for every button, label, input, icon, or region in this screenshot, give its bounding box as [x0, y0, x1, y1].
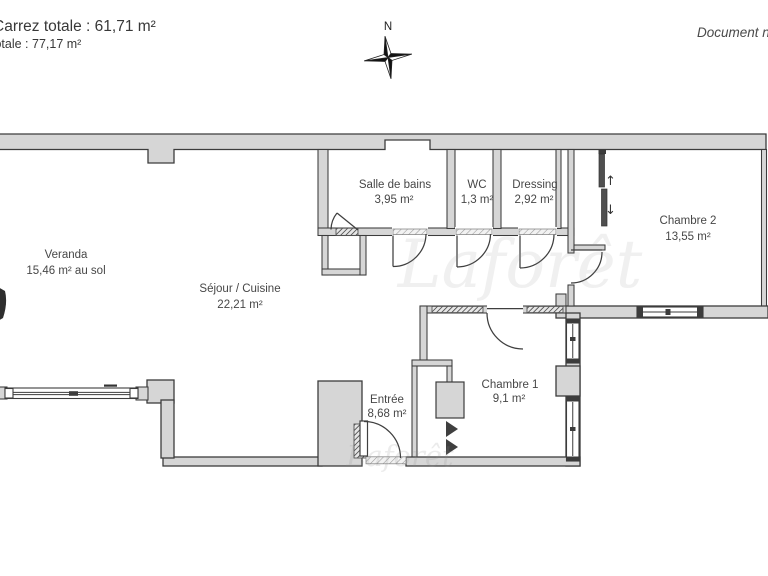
chambre1-top-wall-hatch-left: [432, 306, 483, 312]
bathroom-inner-door: [331, 213, 358, 230]
room-label-dressing: Dressing: [512, 179, 557, 191]
chambre1-window-lower: [567, 397, 580, 461]
watermark-text-small: Laforêt: [345, 439, 454, 473]
left-edge-door-fragment: [0, 287, 6, 321]
veranda-window: [5, 386, 138, 399]
room-label-chambre2: Chambre 2: [660, 215, 717, 227]
chambre1-window-upper: [567, 319, 580, 363]
veranda-step-wall: [161, 400, 174, 458]
nook-bottom-wall: [322, 269, 366, 275]
room-label-wc: WC: [467, 179, 486, 191]
room-label-entree: Entrée: [370, 394, 404, 406]
watermark: Laforêt Laforêt: [345, 226, 642, 473]
closet-top-wall: [412, 360, 452, 366]
chambre1-door: [487, 309, 523, 349]
right-wall: [762, 150, 767, 307]
floor-plan-svg: ↑ ↓ Laforêt Laforêt Veranda 15,46 m² au …: [0, 0, 768, 576]
document-note-text: Document n: [697, 25, 768, 40]
watermark-text-large: Laforêt: [397, 226, 643, 303]
compass-rose: N: [361, 21, 415, 82]
nook-right-wall: [360, 236, 366, 276]
room-area-salle-de-bains: 3,95 m²: [375, 194, 414, 206]
surface-totale-text: totale : 77,17 m²: [0, 37, 81, 51]
room-area-veranda: 15,46 m² au sol: [26, 265, 105, 277]
room-area-chambre2: 13,55 m²: [665, 231, 711, 243]
room-area-wc: 1,3 m²: [461, 194, 494, 206]
room-area-chambre1: 9,1 m²: [493, 393, 526, 405]
bathroom-wc-partition: [447, 150, 455, 229]
slide-up-arrow: ↑: [605, 174, 616, 189]
room-area-entree: 8,68 m²: [368, 408, 407, 420]
sejour-bottom-wall: [163, 457, 322, 466]
surface-carrez-text: Carrez totale : 61,71 m²: [0, 18, 156, 35]
room-area-dressing: 2,92 m²: [515, 194, 554, 206]
slide-down-arrow: ↓: [605, 203, 616, 218]
closet-stub-wall: [447, 366, 452, 383]
bathroom-inner-door-sill: [336, 228, 358, 235]
chambre2-window: [637, 307, 703, 317]
room-label-chambre1: Chambre 1: [482, 379, 539, 391]
chambre1-top-wall-hatch-right: [527, 306, 563, 312]
room-label-salle-de-bains: Salle de bains: [359, 179, 431, 191]
water-heater-block: [436, 382, 464, 418]
room-label-veranda: Veranda: [45, 249, 88, 261]
sejour-bathroom-wall: [318, 150, 328, 229]
wc-dressing-partition: [493, 150, 501, 229]
floor-plan-page: ↑ ↓ Laforêt Laforêt Veranda 15,46 m² au …: [0, 0, 768, 576]
chambre1-right-pillar: [556, 366, 580, 396]
entree-chambre1-partition: [420, 306, 427, 360]
room-area-sejour: 22,21 m²: [217, 299, 263, 311]
compass-north-label: N: [384, 21, 392, 33]
top-wall: [0, 134, 766, 163]
room-label-sejour: Séjour / Cuisine: [199, 283, 280, 295]
